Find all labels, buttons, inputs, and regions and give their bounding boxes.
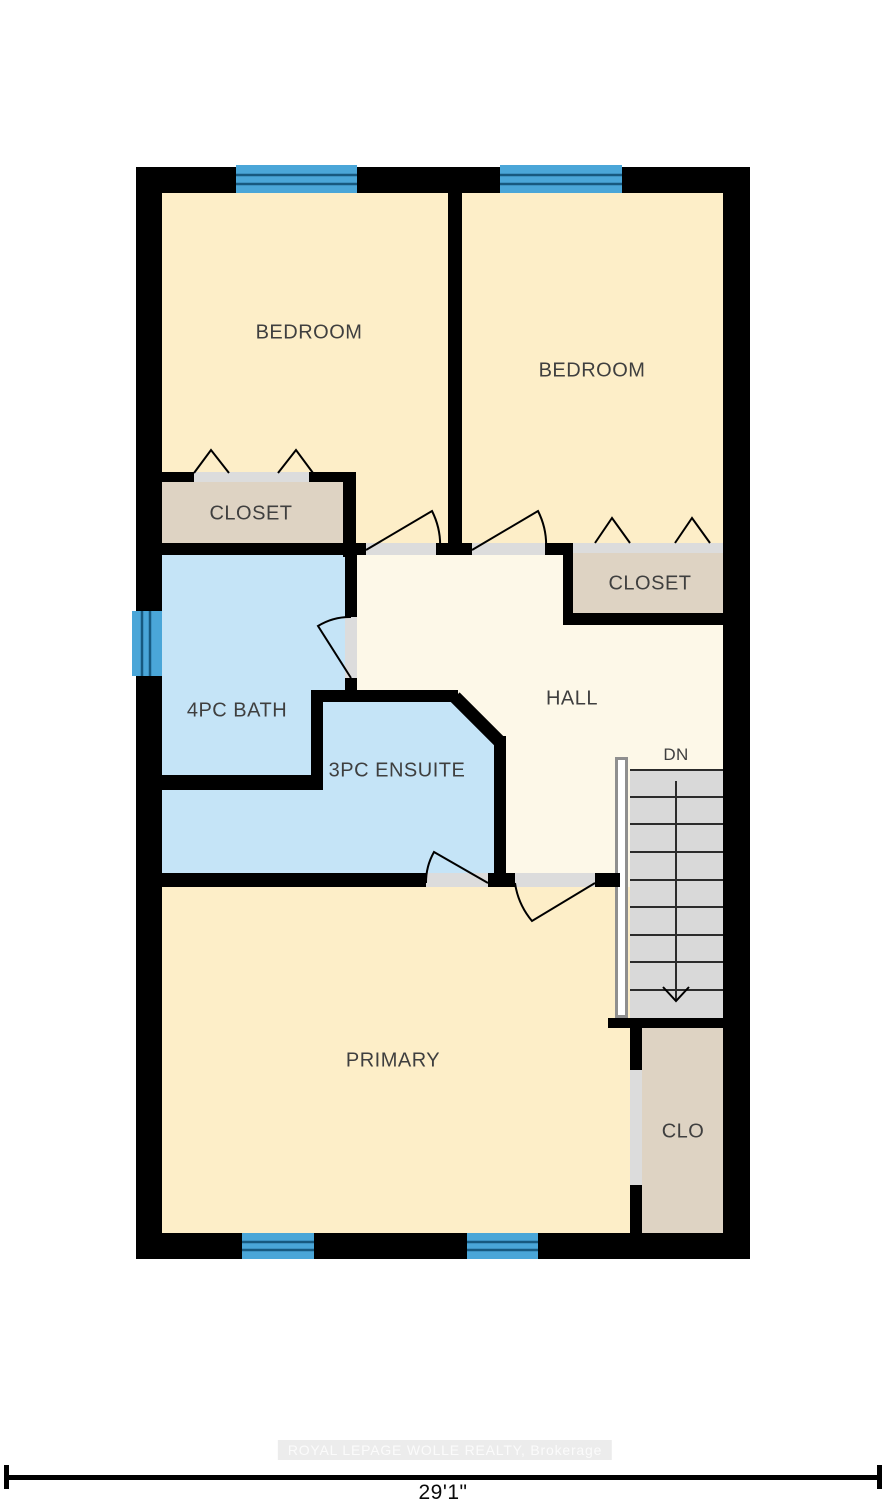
primary-label: PRIMARY (346, 1050, 440, 1073)
window-icon (467, 1233, 538, 1259)
closet-right-label: CLOSET (608, 573, 691, 596)
floor-plan-drawing (0, 0, 886, 1509)
window-icon (500, 165, 622, 193)
window-icon (242, 1233, 314, 1259)
ensuite-label: 3PC ENSUITE (329, 760, 466, 783)
bath-label: 4PC BATH (187, 700, 287, 723)
window-icon (236, 165, 357, 193)
hall-label: HALL (546, 688, 598, 711)
overall-width-dimension: 29'1" (418, 1481, 467, 1505)
floor-plan: BEDROOM BEDROOM CLOSET CLOSET 4PC BATH 3… (0, 0, 886, 1509)
stairs-down-label: DN (663, 745, 688, 765)
window-icon (132, 611, 162, 676)
stair-railing (615, 757, 628, 1018)
bedroom-right-label: BEDROOM (539, 360, 646, 383)
staircase (630, 769, 723, 1018)
bedroom-left-label: BEDROOM (256, 322, 363, 345)
brokerage-watermark: ROYAL LEPAGE WOLLE REALTY, Brokerage (278, 1440, 612, 1460)
closet-left-label: CLOSET (209, 503, 292, 526)
closet-primary-label: CLO (662, 1121, 705, 1144)
